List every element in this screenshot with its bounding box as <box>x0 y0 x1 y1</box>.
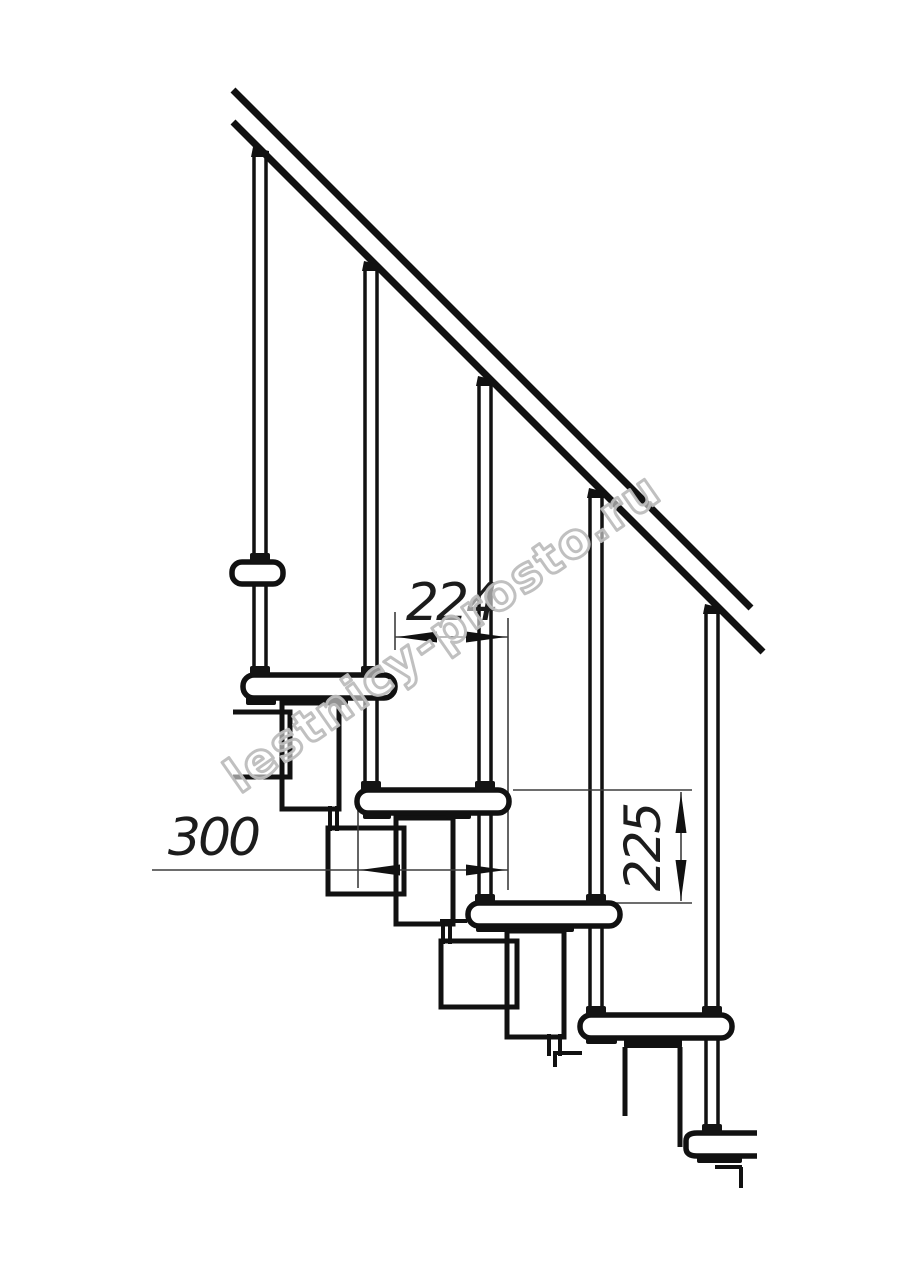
tread-5-partial <box>686 1133 757 1156</box>
baluster-5 <box>706 611 718 1130</box>
drawing-canvas: 224 300 225 lestnicy-prosto.ru <box>0 0 914 1280</box>
staircase-drawing: 224 300 225 lestnicy-prosto.ru <box>0 0 914 1280</box>
tread-3 <box>468 903 620 926</box>
arrow-225-up <box>676 793 687 833</box>
tread-2 <box>357 790 509 813</box>
tread-4 <box>580 1015 732 1038</box>
tread-top-partial <box>232 562 283 584</box>
arrow-225-down <box>676 860 687 900</box>
module-box-4-partial <box>625 1047 680 1147</box>
baluster-4 <box>590 495 602 1012</box>
baluster-3 <box>479 383 491 900</box>
arrow-300-right <box>466 865 506 876</box>
bottom-step-outline <box>715 1167 742 1188</box>
dimension-label-300: 300 <box>168 808 259 868</box>
baluster-1 <box>254 154 266 672</box>
dimension-label-225: 225 <box>614 804 672 892</box>
